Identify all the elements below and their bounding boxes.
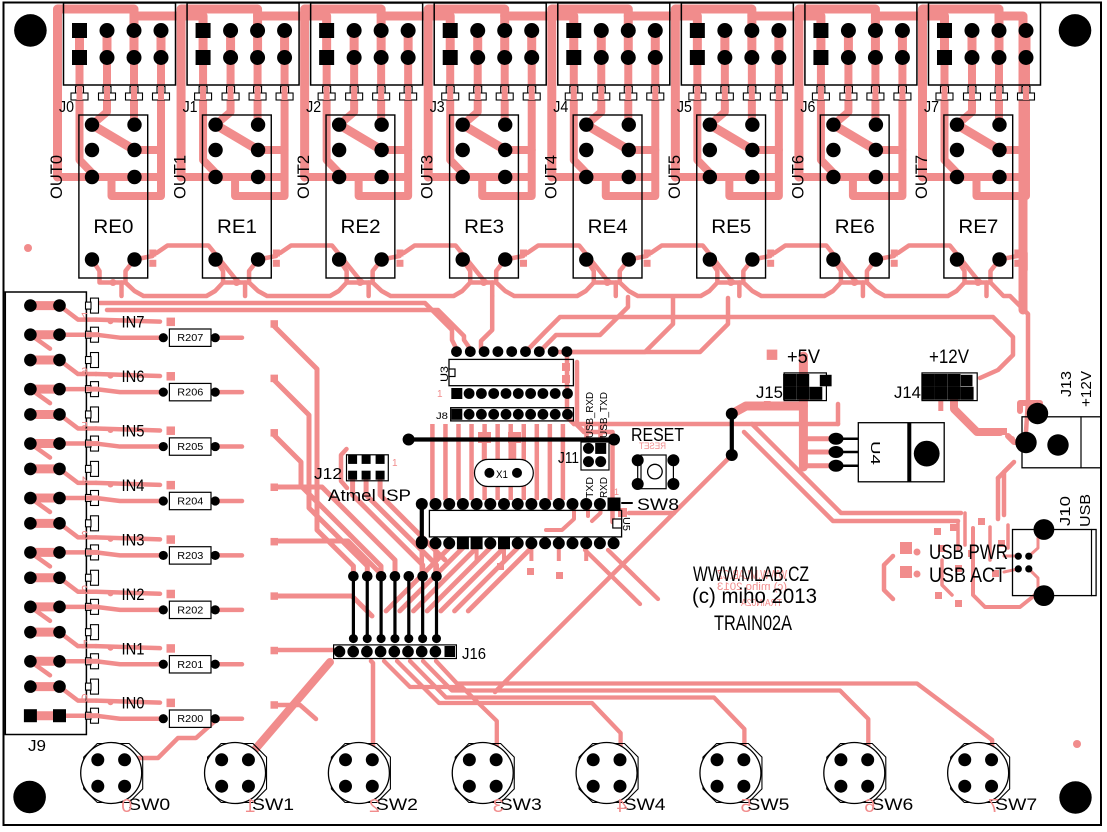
svg-text:J8: J8 [436,411,448,422]
svg-text:R202: R202 [177,605,203,616]
svg-text:R201: R201 [177,660,203,671]
svg-text:+5v: +5v [754,400,782,411]
svg-text:2: 2 [369,796,380,816]
svg-text:(c) miho 2013: (c) miho 2013 [692,584,817,608]
svg-text:SW0: SW0 [128,795,170,814]
svg-text:2: 2 [81,583,88,597]
svg-text:IN4: IN4 [122,476,145,495]
svg-text:OUT1: OUT1 [171,155,190,199]
svg-text:USB ACT: USB ACT [929,564,1006,587]
svg-text:J3: J3 [430,99,445,116]
svg-text:1: 1 [437,389,443,400]
svg-text:J2: J2 [306,99,321,116]
svg-text:J14: J14 [894,383,921,402]
svg-text:RE7: RE7 [958,217,998,238]
svg-text:IN1: IN1 [122,639,145,658]
svg-text:R206: R206 [177,388,203,399]
svg-text:RXD: RXD [599,477,610,498]
svg-text:Atmel ISP: Atmel ISP [328,486,411,505]
svg-text:+5V: +5V [787,347,820,368]
svg-text:OUT4: OUT4 [541,155,560,199]
svg-text:X1: X1 [496,469,508,481]
svg-text:J16: J16 [462,646,486,663]
svg-text:OUT0: OUT0 [47,155,66,199]
svg-text:SW4: SW4 [624,795,666,814]
svg-text:RE1: RE1 [217,217,257,238]
svg-text:USB PWR: USB PWR [929,541,1008,564]
svg-text:IN2: IN2 [122,585,145,604]
svg-text:IN6: IN6 [122,367,145,386]
svg-text:J7: J7 [924,99,939,116]
svg-text:R204: R204 [177,496,203,507]
svg-text:4: 4 [617,796,628,816]
svg-text:6: 6 [81,365,88,379]
svg-text:5: 5 [740,796,751,816]
svg-text:U5: U5 [620,517,631,531]
svg-text:TXD: TXD [585,477,596,498]
svg-text:OUT3: OUT3 [418,155,437,199]
svg-text:RE5: RE5 [711,217,751,238]
svg-text:U3: U3 [439,366,451,382]
svg-text:OUT5: OUT5 [665,155,684,199]
svg-text:R207: R207 [177,333,203,344]
svg-text:RE3: RE3 [464,217,504,238]
svg-text:7: 7 [988,796,999,816]
svg-text:OUT6: OUT6 [788,155,807,199]
svg-text:R205: R205 [177,442,203,453]
svg-text:+12V: +12V [929,347,969,368]
svg-text:1: 1 [392,458,398,469]
svg-text:IN7: IN7 [122,313,145,332]
svg-text:USB: USB [1077,494,1094,527]
svg-text:J5: J5 [677,99,692,116]
svg-text:RE0: RE0 [93,217,133,238]
svg-text:3: 3 [493,796,504,816]
svg-text:OUT2: OUT2 [294,155,313,199]
svg-text:7: 7 [81,311,88,325]
svg-text:R203: R203 [177,551,203,562]
svg-text:SW5: SW5 [747,795,789,814]
svg-text:RE2: RE2 [341,217,381,238]
svg-text:IN3: IN3 [122,530,145,549]
svg-text:TRAIN02A: TRAIN02A [714,612,792,635]
svg-text:J0: J0 [59,99,74,116]
svg-text:R200: R200 [177,714,203,725]
svg-text:J9: J9 [28,738,46,755]
svg-text:WWW.MLAB.CZ: WWW.MLAB.CZ [693,562,809,586]
svg-text:RESET: RESET [639,441,666,451]
svg-text:6: 6 [864,796,875,816]
svg-text:SW1: SW1 [252,795,294,814]
svg-text:SW8: SW8 [637,495,679,514]
svg-text:IN0: IN0 [122,694,145,713]
svg-text:IN5: IN5 [122,422,145,441]
svg-text:OUT7: OUT7 [912,155,931,199]
svg-text:1: 1 [245,796,256,816]
svg-text:0: 0 [121,796,132,816]
svg-text:4: 4 [81,474,88,488]
svg-text:3: 3 [81,528,88,542]
svg-text:J12: J12 [314,466,342,483]
svg-text:RE6: RE6 [835,217,875,238]
svg-text:J11: J11 [558,450,579,467]
svg-text:1: 1 [81,637,88,651]
svg-text:1: 1 [614,487,619,497]
svg-text:5: 5 [81,420,88,434]
svg-text:SW2: SW2 [376,795,418,814]
svg-text:U4: U4 [868,441,883,465]
svg-text:J4: J4 [553,99,568,116]
svg-text:0: 0 [81,692,88,706]
svg-text:SW6: SW6 [871,795,913,814]
svg-text:RE4: RE4 [588,217,628,238]
svg-text:J13: J13 [1058,371,1075,397]
svg-text:J1: J1 [183,99,198,116]
svg-text:J6: J6 [800,99,815,116]
svg-text:USB_RXD: USB_RXD [585,392,596,438]
svg-text:USB_TXD: USB_TXD [599,392,610,438]
svg-text:+12V: +12V [1078,371,1095,407]
svg-text:SW7: SW7 [995,795,1037,814]
svg-text:J10: J10 [1057,496,1074,526]
svg-text:SW3: SW3 [500,795,542,814]
